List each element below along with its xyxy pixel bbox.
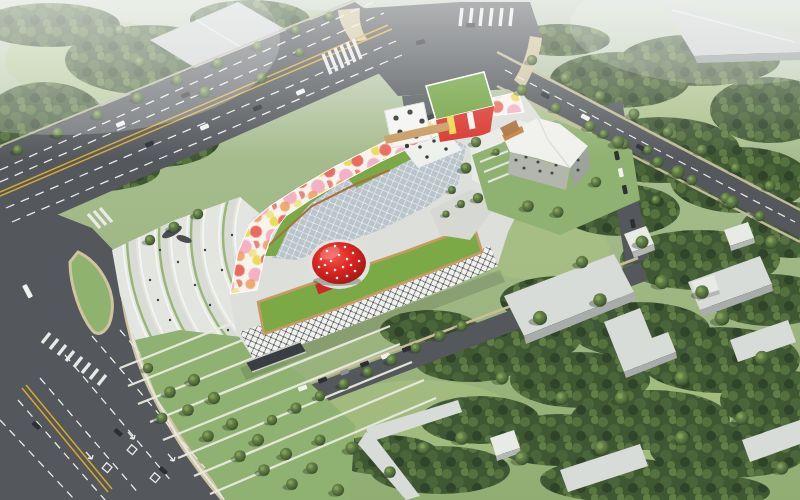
rendering-canvas xyxy=(0,0,800,500)
strawberry-dome xyxy=(308,239,370,289)
